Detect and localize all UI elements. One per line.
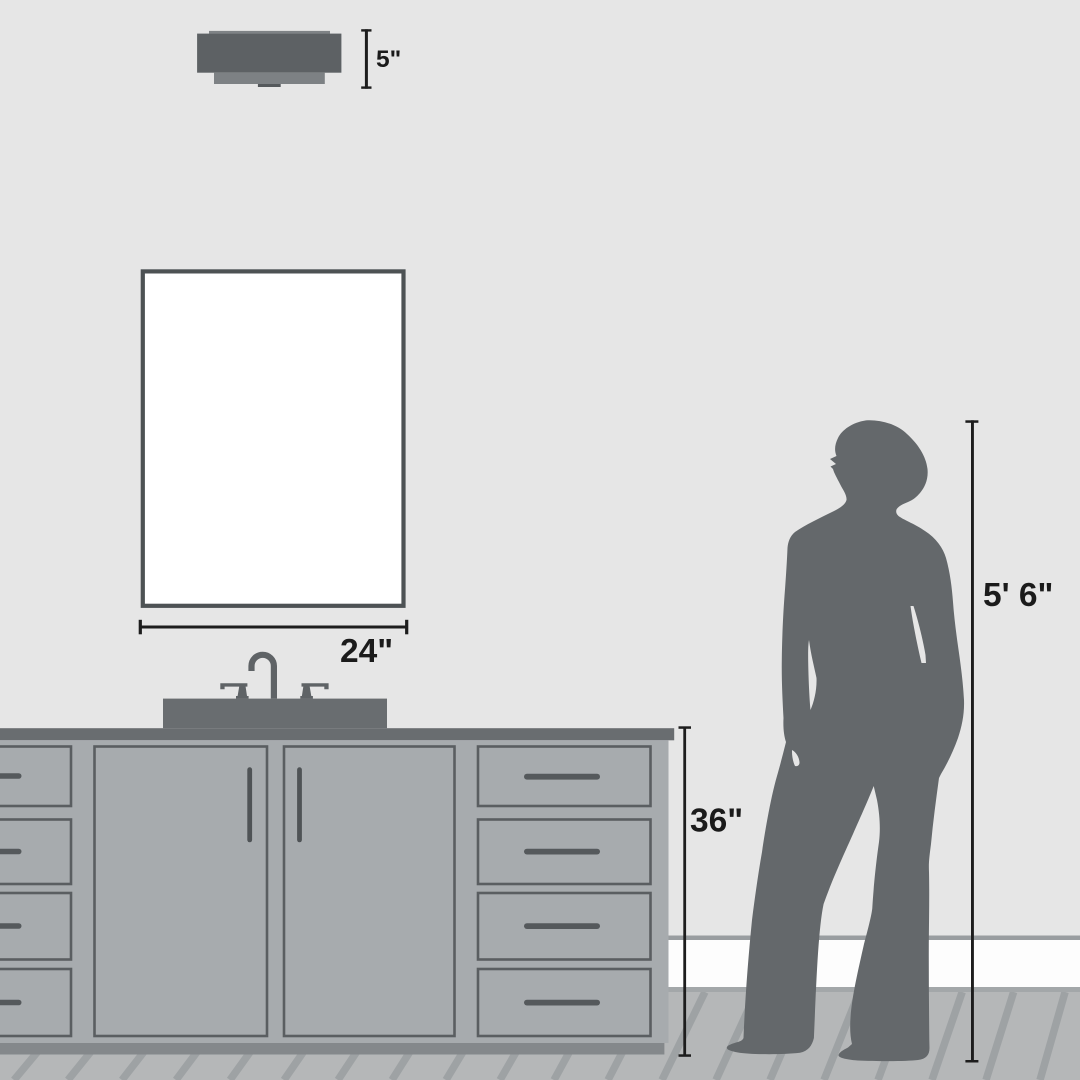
svg-text:5' 6": 5' 6" [983,577,1053,614]
svg-text:5": 5" [376,46,401,73]
svg-text:36": 36" [690,803,743,840]
svg-text:24": 24" [340,633,393,670]
